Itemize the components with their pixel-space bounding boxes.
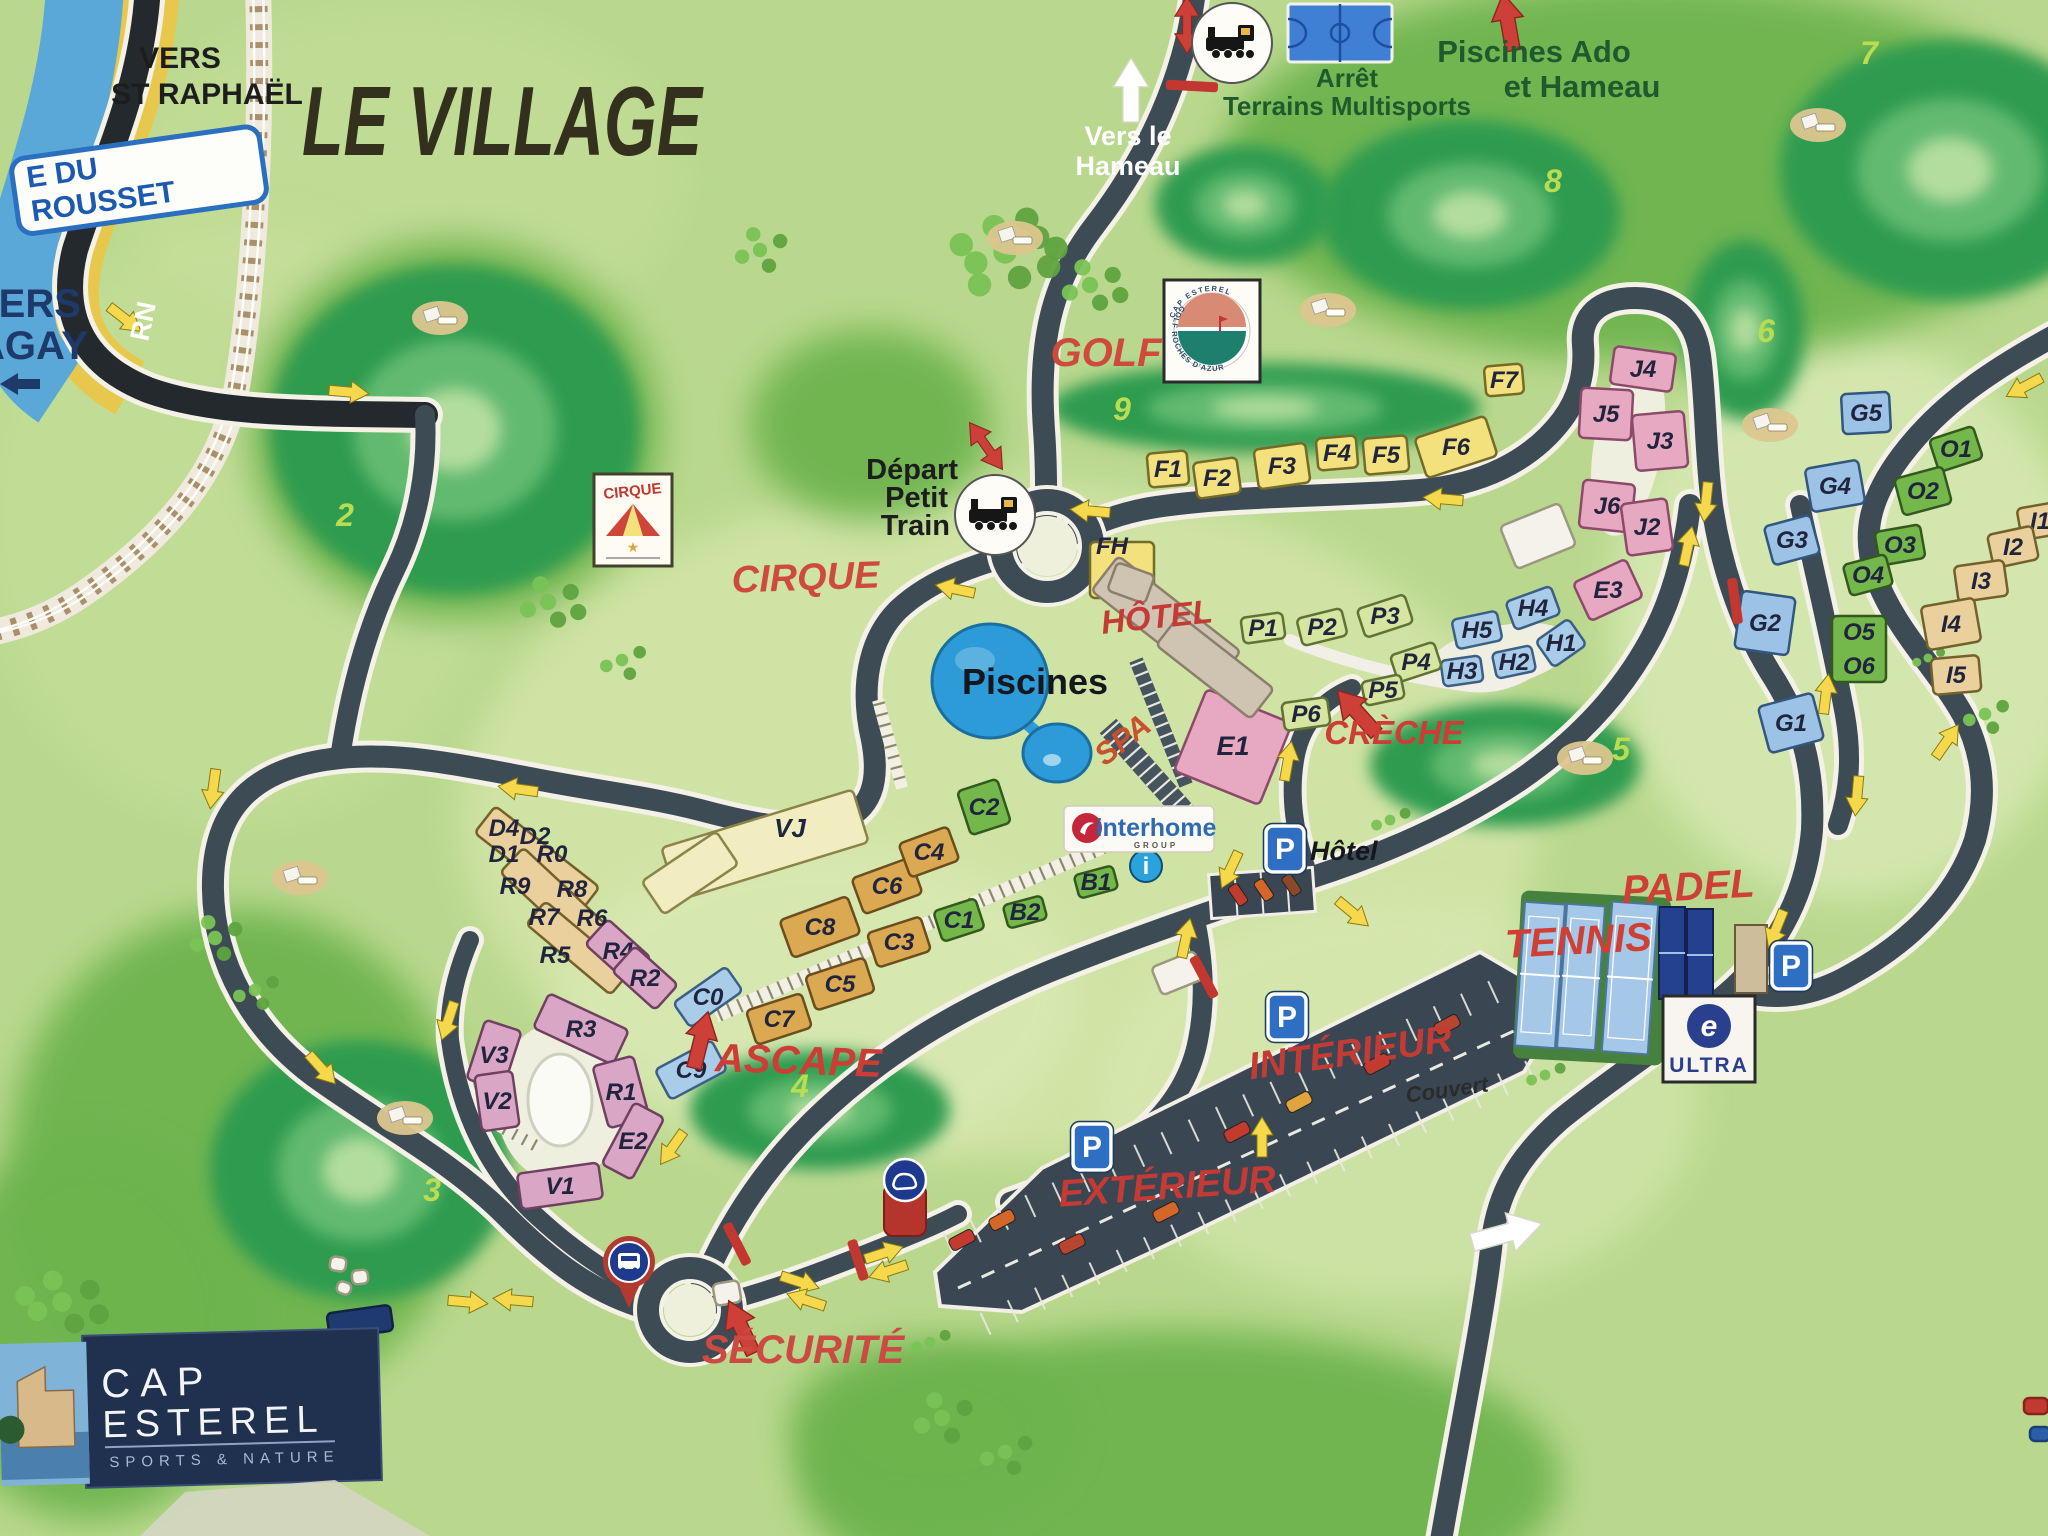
- map-layers: F1F2F3F4F5F6F7FHVJJ4J5J3J6J2E3E1H5H4H1H2…: [0, 0, 2048, 1536]
- tree: [27, 1301, 47, 1321]
- building-label-J3: J3: [1647, 428, 1674, 455]
- climbing-wall: [1735, 925, 1767, 993]
- train-wheel: [1224, 50, 1233, 59]
- tree: [1540, 1070, 1551, 1081]
- lounger: [1816, 124, 1835, 131]
- building-label-D4: D4: [489, 815, 520, 842]
- village-map-svg: F1F2F3F4F5F6F7FHVJJ4J5J3J6J2E3E1H5H4H1H2…: [0, 0, 2048, 1536]
- label-cirque: CIRQUE: [731, 554, 882, 601]
- tree: [532, 576, 548, 592]
- cirque-star: ★: [627, 539, 640, 555]
- label-train: Train: [881, 510, 950, 542]
- building-label-VJ: VJ: [774, 813, 806, 843]
- building-label-R1: R1: [606, 1079, 637, 1106]
- building-label-O4: O4: [1852, 562, 1884, 589]
- building-label-P6: P6: [1291, 701, 1321, 728]
- building-label-V3: V3: [479, 1042, 509, 1069]
- golf-hole-8: 8: [1544, 163, 1562, 199]
- tree: [1062, 284, 1078, 300]
- parking-sign-icon: P: [1266, 992, 1309, 1043]
- tree: [89, 1304, 109, 1324]
- building-label-C1: C1: [944, 907, 975, 934]
- tree: [926, 1392, 942, 1408]
- lounger: [1013, 237, 1032, 244]
- building-label-E2: E2: [618, 1128, 648, 1155]
- tree: [633, 646, 646, 659]
- sun-lounger-icon: [377, 1101, 433, 1135]
- building-label-R6: R6: [577, 905, 608, 932]
- building-label-I2: I2: [2003, 534, 2024, 561]
- tree: [64, 1314, 84, 1334]
- train-wheel: [999, 522, 1008, 531]
- label-arrêt: Arrêt: [1316, 63, 1378, 93]
- bus-wheel: [633, 1268, 638, 1273]
- ultra-wordmark: ULTRA: [1669, 1054, 1749, 1077]
- tree: [1912, 658, 1921, 667]
- train-wheel: [1236, 50, 1245, 59]
- tree: [914, 1417, 930, 1433]
- building-label-R0: R0: [537, 841, 568, 868]
- bus-wheel: [621, 1268, 626, 1273]
- sun-lounger-icon: [1742, 408, 1798, 442]
- tree: [201, 915, 215, 929]
- golf-hole-9: 9: [1113, 391, 1131, 427]
- building-label-J6: J6: [1594, 493, 1621, 520]
- parking-sign-letter: P: [1275, 833, 1295, 866]
- interhome-subtext: GROUP: [1134, 841, 1178, 850]
- building-label-B2: B2: [1010, 899, 1041, 926]
- interhome-logo: interhomeGROUP: [1064, 806, 1217, 852]
- lounger: [298, 877, 317, 884]
- golf-green-center: [323, 1138, 398, 1203]
- building-label-C6: C6: [872, 873, 903, 900]
- train-wheel: [1009, 522, 1018, 531]
- tree: [1979, 708, 1992, 721]
- bus-windows: [621, 1256, 637, 1261]
- building-label-I4: I4: [1941, 611, 1961, 638]
- tree: [1112, 287, 1128, 303]
- tree: [1385, 815, 1396, 826]
- building-label-C5: C5: [825, 971, 856, 998]
- building-label-E1: E1: [1216, 731, 1249, 761]
- building: [2030, 1427, 2048, 1441]
- building-label-P3: P3: [1370, 603, 1400, 630]
- barrier-circle: [884, 1159, 926, 1201]
- tree: [616, 654, 629, 667]
- building-label-V1: V1: [545, 1173, 574, 1200]
- green-patch: [750, 330, 990, 520]
- train-window: [1241, 28, 1250, 35]
- tree: [980, 1452, 994, 1466]
- pool-highlight: [1043, 754, 1061, 766]
- building-label-J2: J2: [1634, 514, 1661, 541]
- building-label-P5: P5: [1368, 677, 1398, 704]
- tree: [925, 1337, 936, 1348]
- tree: [753, 243, 767, 257]
- tree: [1987, 721, 2000, 734]
- golf-green-center: [1223, 190, 1268, 220]
- tree: [233, 990, 246, 1003]
- building-label-E3: E3: [1593, 577, 1623, 604]
- sun-lounger-icon: [987, 221, 1043, 255]
- train-chimney: [971, 499, 978, 509]
- info-letter: i: [1143, 853, 1150, 880]
- golf-hole-6: 6: [1757, 313, 1775, 349]
- building-label-C8: C8: [805, 914, 836, 941]
- tree: [746, 227, 760, 241]
- sun-lounger-icon: [1790, 108, 1846, 142]
- label-vers-le: Vers le: [1084, 121, 1171, 151]
- tree: [1526, 1075, 1537, 1086]
- lounger: [403, 1117, 422, 1124]
- tree: [52, 1292, 72, 1312]
- tree: [257, 997, 270, 1010]
- tree: [1082, 277, 1098, 293]
- tree: [1996, 700, 2009, 713]
- lounger: [438, 317, 457, 324]
- tree: [950, 233, 973, 256]
- building-label-H4: H4: [1518, 595, 1549, 622]
- label-hameau: Hameau: [1075, 151, 1180, 181]
- tree: [540, 594, 556, 610]
- tree: [773, 234, 787, 248]
- cap-esterel-line2: ESTEREL: [102, 1399, 325, 1447]
- building-label-O3: O3: [1884, 532, 1917, 559]
- tree: [944, 1428, 960, 1444]
- golf-hole-2: 2: [335, 497, 354, 533]
- building-label-P1: P1: [1248, 615, 1277, 642]
- cap-esterel-logo: CAPESTERELSPORTS & NATURE: [0, 1328, 382, 1490]
- tree: [1074, 259, 1090, 275]
- pool-village-white: [528, 1054, 592, 1146]
- label-tennis: TENNIS: [1504, 915, 1653, 967]
- tree: [563, 584, 579, 600]
- building: [329, 1256, 347, 1272]
- petit-train-icon: [955, 475, 1035, 555]
- train-wheel: [1246, 50, 1255, 59]
- building-label-F6: F6: [1442, 434, 1471, 461]
- building-label-G1: G1: [1775, 710, 1807, 737]
- building-label-I5: I5: [1946, 662, 1967, 689]
- parking-sign-icon: P: [1071, 1122, 1114, 1173]
- label-terrains-multisports: Terrains Multisports: [1223, 91, 1471, 121]
- train-chimney: [1208, 27, 1215, 37]
- cap-esterel-line1: CAP: [101, 1359, 214, 1406]
- tree: [1008, 266, 1031, 289]
- label-vers: VERS: [0, 282, 81, 326]
- tree: [190, 938, 204, 952]
- building-label-O1: O1: [1940, 436, 1972, 463]
- multisport-court-icon: [1288, 4, 1392, 62]
- building-label-R5: R5: [540, 942, 571, 969]
- tree: [1044, 237, 1067, 260]
- cap-esterel-village-map: F1F2F3F4F5F6F7FHVJJ4J5J3J6J2E3E1H5H4H1H2…: [0, 0, 2048, 1536]
- label-piscines-ado: Piscines Ado: [1437, 34, 1631, 69]
- building: [351, 1269, 368, 1285]
- building-label-G2: G2: [1749, 610, 1782, 637]
- sun-lounger-icon: [412, 301, 468, 335]
- label-vers: VERS: [139, 42, 221, 75]
- building-label-F3: F3: [1268, 453, 1297, 480]
- building-label-C2: C2: [969, 794, 1000, 821]
- tree: [249, 984, 262, 997]
- building-label-O6: O6: [1843, 653, 1876, 680]
- building-label-H2: H2: [1499, 649, 1530, 676]
- building-label-C7: C7: [764, 1006, 796, 1033]
- train-wheel: [975, 522, 984, 531]
- tree: [208, 931, 222, 945]
- building-label-O5: O5: [1843, 619, 1876, 646]
- barrier-gate-icon: [884, 1159, 926, 1236]
- label-agay: AGAY: [0, 324, 88, 368]
- lounger: [1326, 309, 1345, 316]
- building-label-F1: F1: [1154, 456, 1182, 483]
- tree: [600, 660, 613, 673]
- tree: [968, 273, 991, 296]
- building-label-P4: P4: [1401, 649, 1430, 676]
- train-window: [1004, 500, 1013, 507]
- train-wheel: [987, 522, 996, 531]
- building-label-V2: V2: [482, 1088, 512, 1115]
- lounger: [1583, 757, 1602, 764]
- label-et-hameau: et Hameau: [1504, 69, 1661, 104]
- tree: [1555, 1063, 1566, 1074]
- tree: [911, 1342, 922, 1353]
- tree: [217, 946, 231, 960]
- tree: [940, 1330, 951, 1341]
- train-wheel: [1212, 50, 1221, 59]
- building: [2024, 1398, 2048, 1414]
- tree: [624, 667, 637, 680]
- sun-lounger-icon: [1300, 293, 1356, 327]
- building-label-R7: R7: [529, 904, 561, 931]
- building-label-R2: R2: [630, 965, 661, 992]
- label-golf: GOLF: [1050, 331, 1163, 375]
- tree: [570, 604, 586, 620]
- building-label-F2: F2: [1203, 465, 1232, 492]
- tree: [266, 976, 279, 989]
- building-label-J5: J5: [1593, 401, 1620, 428]
- label-piscines: Piscines: [962, 661, 1108, 702]
- golf-green-center: [1433, 191, 1508, 239]
- building-label-P2: P2: [1307, 614, 1337, 641]
- building-label-R3: R3: [566, 1016, 597, 1043]
- pool-small: [1023, 724, 1091, 782]
- building-label-F5: F5: [1372, 442, 1401, 469]
- building-label-H3: H3: [1447, 658, 1478, 685]
- tree: [957, 1400, 973, 1416]
- building-label-G4: G4: [1819, 473, 1851, 500]
- tree: [1400, 808, 1411, 819]
- golf-green-center: [1908, 138, 1993, 203]
- golf-hole-7: 7: [1860, 35, 1880, 71]
- parking-sign-letter: P: [1277, 1001, 1297, 1034]
- tree: [1018, 1436, 1032, 1450]
- tree: [520, 601, 536, 617]
- building-label-B1: B1: [1081, 869, 1112, 896]
- building-label-G3: G3: [1776, 527, 1809, 554]
- tree: [998, 1445, 1012, 1459]
- tree: [735, 250, 749, 264]
- building-label-O2: O2: [1907, 478, 1940, 505]
- tree: [15, 1286, 35, 1306]
- tree: [964, 251, 987, 274]
- sun-lounger-icon: [272, 861, 328, 895]
- parking-sign-letter: P: [1082, 1131, 1102, 1164]
- tree: [1007, 1460, 1021, 1474]
- building-label-D1: D1: [489, 841, 520, 868]
- tree: [43, 1271, 63, 1291]
- building-label-C3: C3: [884, 929, 915, 956]
- label-le-village: LE VILLAGE: [302, 66, 704, 176]
- ultra-letter: e: [1701, 1010, 1718, 1043]
- golf-hole-5: 5: [1612, 731, 1631, 767]
- info-icon: i: [1130, 850, 1162, 882]
- tree: [934, 1410, 950, 1426]
- building-label-C4: C4: [914, 839, 945, 866]
- label-crèche: CRÈCHE: [1324, 714, 1464, 751]
- building-label-H1: H1: [1546, 630, 1577, 657]
- building: [712, 1280, 741, 1306]
- label-padel: PADEL: [1621, 862, 1756, 913]
- tree: [228, 922, 242, 936]
- building-label-H5: H5: [1462, 617, 1493, 644]
- building-label-FH: FH: [1096, 533, 1129, 560]
- tree: [1092, 295, 1108, 311]
- ultra-logo: eULTRA: [1663, 996, 1755, 1082]
- golf-hole-3: 3: [423, 1172, 441, 1208]
- label-ascape: ASCAPE: [713, 1036, 883, 1086]
- parking-sign-icon: P: [1264, 824, 1307, 875]
- tree: [1963, 714, 1976, 727]
- tree: [762, 258, 776, 272]
- building-label-F7: F7: [1490, 367, 1520, 394]
- lounger: [1768, 424, 1787, 431]
- label-st-raphaël: ST RAPHAËL: [111, 78, 303, 111]
- interhome-wordmark: interhome: [1096, 814, 1217, 842]
- golf-green-center: [1730, 308, 1760, 353]
- label-hôtel: Hôtel: [1310, 836, 1378, 866]
- building-label-R8: R8: [557, 876, 588, 903]
- parking-sign-letter: P: [1781, 950, 1801, 983]
- building-label-I3: I3: [1971, 568, 1992, 595]
- building-label-R9: R9: [500, 873, 531, 900]
- cirque-logo: CIRQUE★: [594, 474, 672, 566]
- label-sécurité: SÉCURITÉ: [702, 1327, 906, 1372]
- building-label-F4: F4: [1323, 440, 1351, 467]
- parking-sign-icon: P: [1770, 941, 1813, 992]
- building-label-J4: J4: [1630, 356, 1657, 383]
- tree: [1371, 820, 1382, 831]
- golf-green-center: [1211, 397, 1319, 420]
- building-label-G5: G5: [1850, 400, 1883, 427]
- tree: [1105, 267, 1121, 283]
- building-label-C0: C0: [693, 984, 724, 1011]
- tree: [80, 1280, 100, 1300]
- tree: [550, 612, 566, 628]
- petit-train-icon: [1192, 3, 1272, 83]
- golf-club-logo: GOLF ROCHES D'AZURCAP ESTEREL: [1164, 280, 1260, 382]
- sun-lounger-icon: [1557, 741, 1613, 775]
